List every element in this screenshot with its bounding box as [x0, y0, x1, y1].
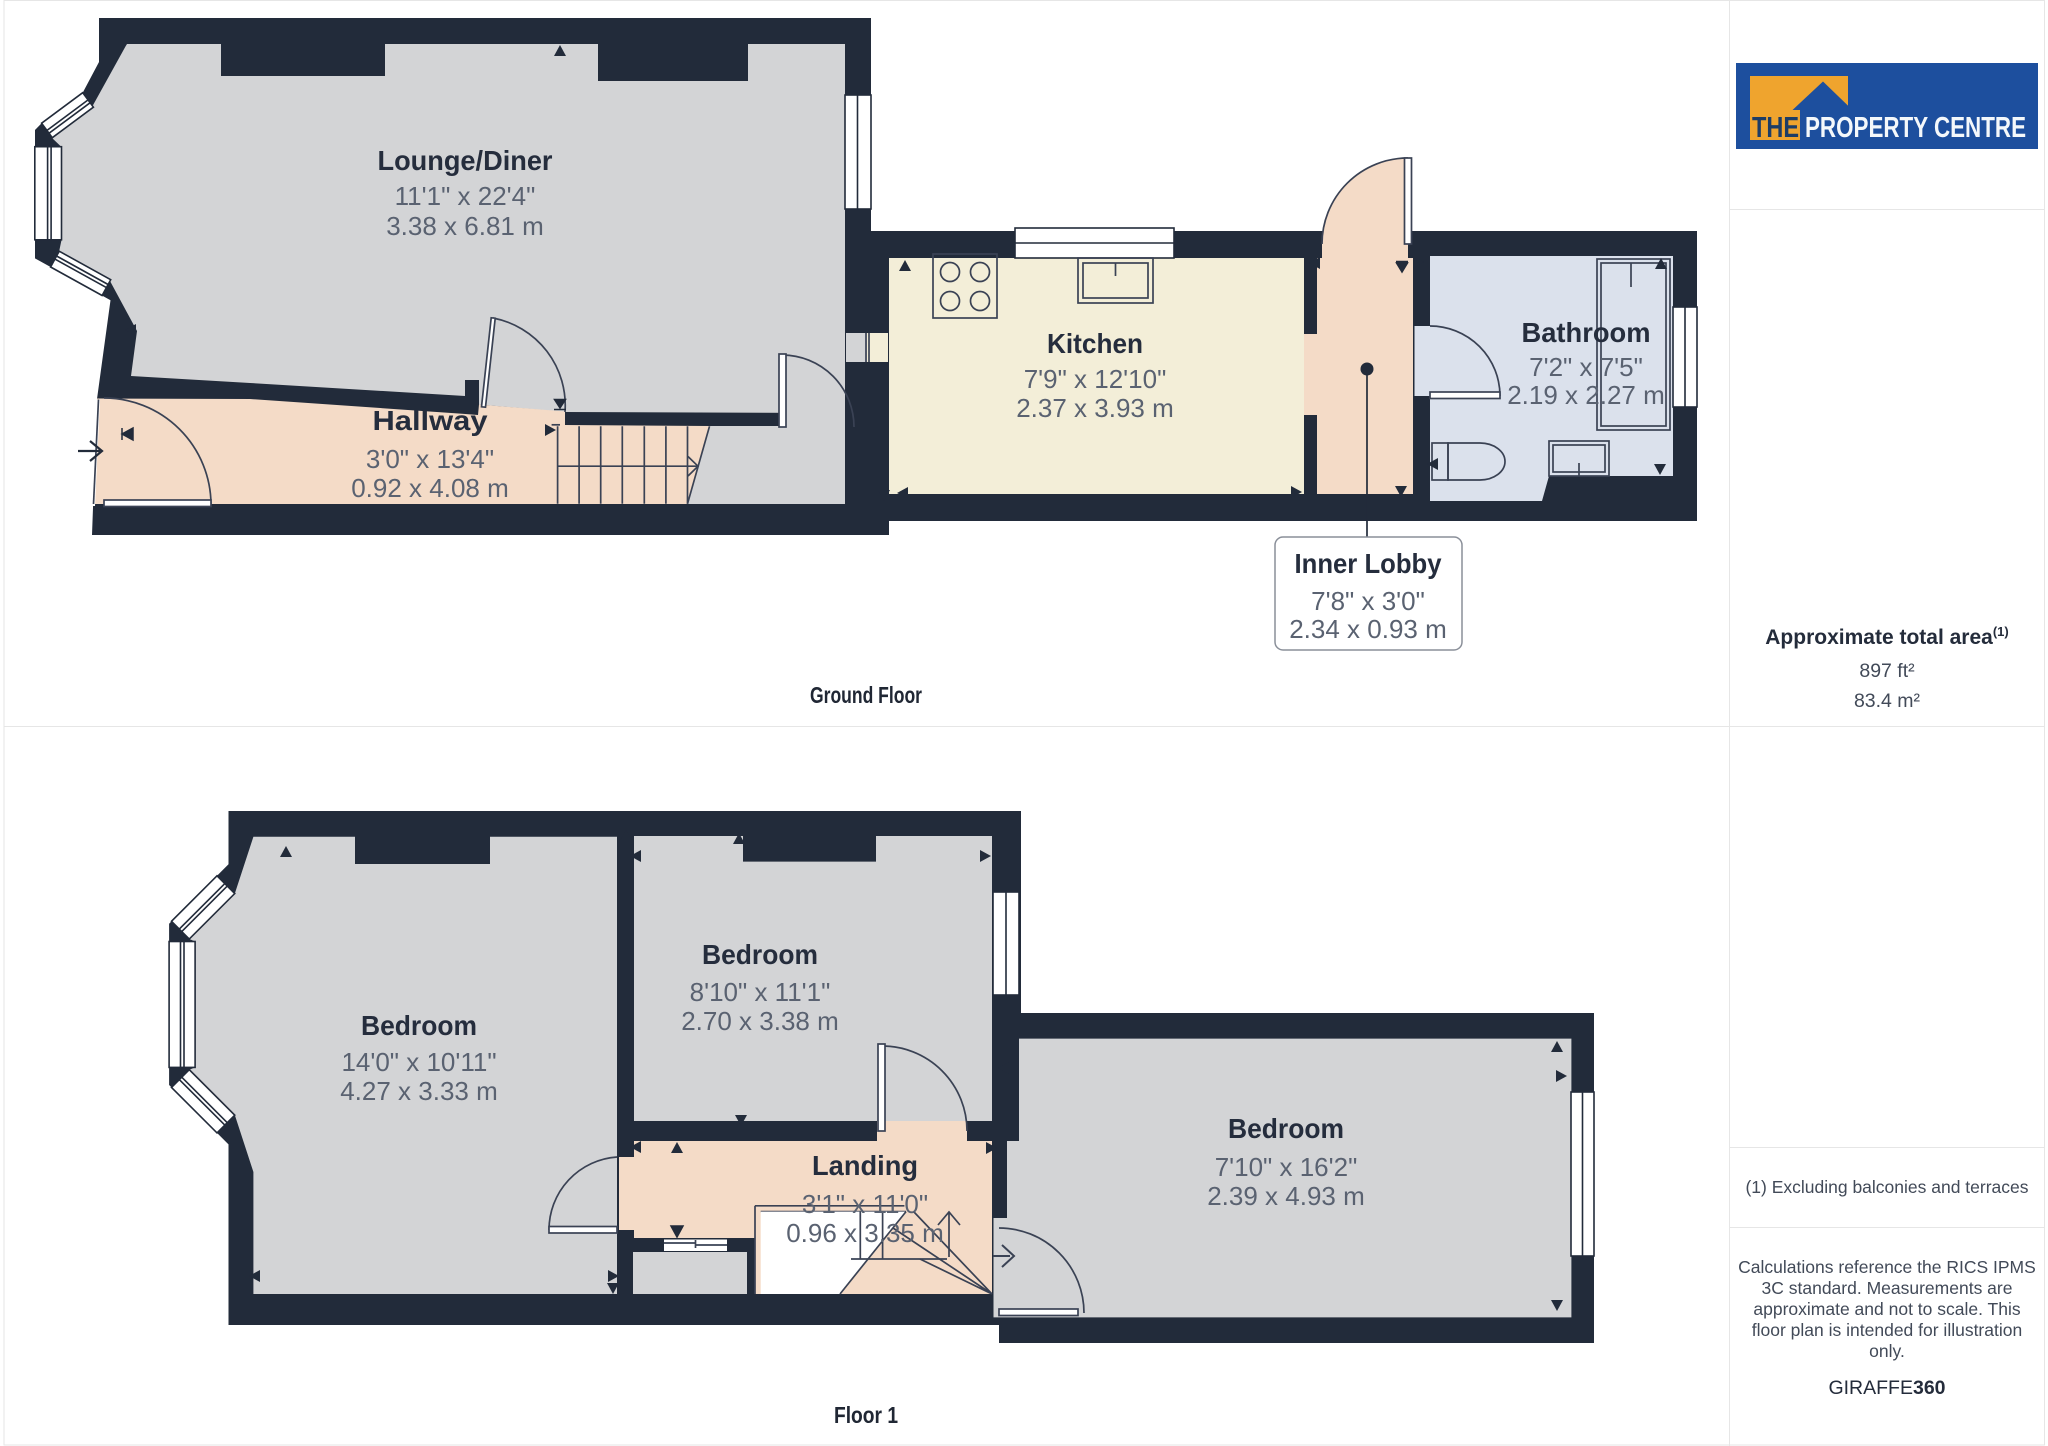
svg-text:PROPERTY CENTRE: PROPERTY CENTRE — [1805, 112, 2026, 144]
svg-text:Bedroom: Bedroom — [1228, 1113, 1344, 1144]
svg-text:4.27 x 3.33 m: 4.27 x 3.33 m — [340, 1076, 498, 1106]
svg-text:7'2" x 7'5": 7'2" x 7'5" — [1529, 352, 1643, 382]
svg-text:Bathroom: Bathroom — [1522, 317, 1651, 348]
svg-text:Lounge/Diner: Lounge/Diner — [378, 145, 553, 176]
svg-text:only.: only. — [1869, 1341, 1905, 1361]
svg-text:3.38 x 6.81 m: 3.38 x 6.81 m — [386, 211, 544, 241]
svg-text:2.37 x 3.93 m: 2.37 x 3.93 m — [1016, 393, 1174, 423]
svg-text:Bedroom: Bedroom — [361, 1010, 477, 1041]
svg-text:GIRAFFE360: GIRAFFE360 — [1828, 1377, 1945, 1399]
svg-text:0.92 x 4.08 m: 0.92 x 4.08 m — [351, 473, 509, 503]
svg-text:7'9" x 12'10": 7'9" x 12'10" — [1024, 364, 1167, 394]
svg-text:Approximate total area(1): Approximate total area(1) — [1765, 624, 2008, 649]
svg-text:7'8" x 3'0": 7'8" x 3'0" — [1311, 586, 1425, 616]
svg-text:7'10" x 16'2": 7'10" x 16'2" — [1215, 1152, 1358, 1182]
svg-text:2.70 x 3.38 m: 2.70 x 3.38 m — [681, 1006, 839, 1036]
svg-text:Floor 1: Floor 1 — [834, 1402, 898, 1428]
svg-text:2.34 x 0.93 m: 2.34 x 0.93 m — [1289, 614, 1447, 644]
svg-text:3'1" x 11'0": 3'1" x 11'0" — [802, 1189, 928, 1219]
svg-text:Calculations reference the RIC: Calculations reference the RICS IPMS — [1738, 1257, 2036, 1277]
svg-text:approximate and not to scale.: approximate and not to scale. This — [1753, 1299, 2020, 1319]
svg-text:(1) Excluding balconies and te: (1) Excluding balconies and terraces — [1745, 1177, 2028, 1197]
svg-text:2.19 x 2.27 m: 2.19 x 2.27 m — [1507, 380, 1665, 410]
svg-text:3'0" x 13'4": 3'0" x 13'4" — [366, 444, 494, 474]
svg-text:THE: THE — [1752, 112, 1799, 144]
svg-text:Landing: Landing — [812, 1150, 918, 1181]
svg-text:83.4 m²: 83.4 m² — [1854, 690, 1921, 712]
svg-text:Hallway: Hallway — [373, 405, 488, 436]
svg-text:897 ft²: 897 ft² — [1859, 660, 1915, 682]
svg-text:Ground Floor: Ground Floor — [810, 682, 922, 708]
svg-text:Bedroom: Bedroom — [702, 939, 818, 970]
svg-text:11'1" x 22'4": 11'1" x 22'4" — [395, 181, 536, 211]
svg-text:Inner Lobby: Inner Lobby — [1295, 548, 1442, 579]
svg-text:floor plan is intended for ill: floor plan is intended for illustration — [1752, 1320, 2022, 1340]
svg-text:2.39 x 4.93 m: 2.39 x 4.93 m — [1207, 1181, 1365, 1211]
svg-text:Kitchen: Kitchen — [1047, 328, 1143, 359]
svg-text:8'10" x 11'1": 8'10" x 11'1" — [690, 977, 831, 1007]
svg-text:14'0" x 10'11": 14'0" x 10'11" — [341, 1047, 496, 1077]
svg-text:0.96 x 3.35 m: 0.96 x 3.35 m — [786, 1218, 944, 1248]
svg-text:3C standard. Measurements are: 3C standard. Measurements are — [1762, 1278, 2013, 1298]
